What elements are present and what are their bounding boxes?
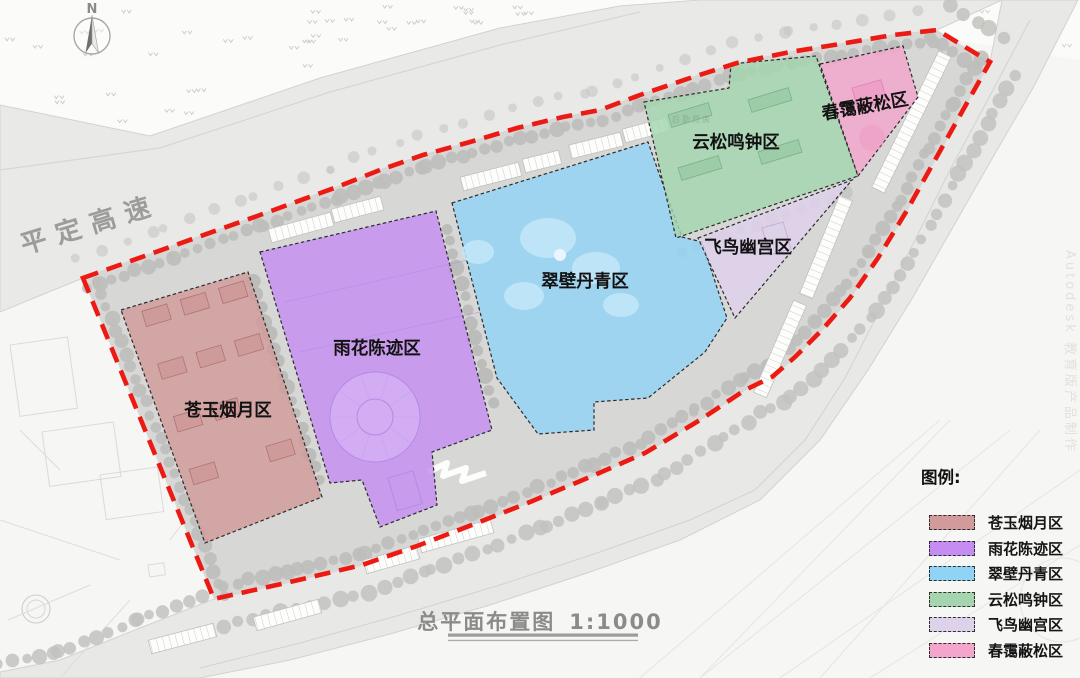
tree <box>347 590 358 601</box>
tree <box>144 610 154 620</box>
tree <box>431 154 446 169</box>
legend-item-chunai: 春霭蔽松区 <box>905 638 1075 664</box>
site-plan-canvas: 苍玉烟月区雨花陈迹区翠壁丹青区云松鸣钟区飞鸟幽宫区春霭蔽松区 N 平定高速 后勤… <box>0 0 1080 678</box>
tree <box>654 423 667 436</box>
tree <box>248 192 257 201</box>
tree <box>826 292 841 307</box>
tree <box>806 371 823 388</box>
tree <box>525 130 538 143</box>
tree <box>776 394 792 410</box>
tree <box>418 525 429 536</box>
tree <box>689 407 698 416</box>
tree <box>109 325 123 339</box>
tree <box>78 635 90 647</box>
tree <box>700 397 714 411</box>
tree <box>866 313 876 323</box>
legend-rows: 苍玉烟月区雨花陈迹区翠壁丹青区云松鸣钟区飞鸟幽宫区春霭蔽松区 <box>905 510 1075 663</box>
tree <box>998 32 1010 44</box>
tree <box>105 311 121 327</box>
tree <box>875 221 890 236</box>
tree <box>319 197 331 209</box>
tree <box>981 20 997 36</box>
tree <box>63 642 76 655</box>
tree <box>863 247 873 257</box>
tree <box>101 302 110 311</box>
tree <box>954 85 966 97</box>
tree <box>488 397 499 408</box>
tree <box>127 263 141 277</box>
tree <box>578 502 593 517</box>
tree <box>607 488 623 504</box>
tree <box>741 415 756 430</box>
tree <box>533 96 544 107</box>
tree <box>856 14 869 27</box>
tree <box>479 143 490 154</box>
tree <box>906 171 917 182</box>
tree <box>348 151 360 163</box>
legend-swatch-yuhua <box>929 541 975 556</box>
tree <box>483 499 498 514</box>
tree <box>446 151 458 163</box>
tree <box>948 181 958 191</box>
tree <box>935 120 946 131</box>
tree <box>633 478 649 494</box>
tree <box>667 417 678 428</box>
tree <box>32 649 47 664</box>
tree <box>439 124 448 133</box>
tree <box>445 235 455 245</box>
tree <box>472 345 483 356</box>
tree <box>184 213 195 224</box>
tree <box>810 316 821 327</box>
tree <box>218 234 228 244</box>
legend-swatch-cangyu <box>929 515 975 530</box>
tree <box>586 85 597 96</box>
tree <box>130 374 140 384</box>
legend-item-yuhua: 雨花陈迹区 <box>905 536 1075 562</box>
tree <box>140 395 152 407</box>
zone-label-yuhua: 雨花陈迹区 <box>333 338 421 359</box>
tree <box>613 78 623 88</box>
tree <box>117 622 127 632</box>
tree <box>339 552 352 565</box>
tree <box>148 226 160 238</box>
tree <box>635 439 646 450</box>
tree <box>228 231 238 241</box>
tree <box>959 72 972 85</box>
tree <box>849 268 858 277</box>
tree <box>332 591 349 608</box>
tree <box>578 459 592 473</box>
tree <box>596 115 608 127</box>
tree <box>371 543 381 553</box>
tree <box>455 276 470 291</box>
tree <box>726 36 738 48</box>
tree <box>623 442 637 456</box>
tree <box>483 544 493 554</box>
tree <box>381 536 394 549</box>
plan-title-block: 总平面布置图1:1000 <box>417 610 662 641</box>
tree <box>447 248 458 259</box>
tree <box>484 110 495 121</box>
legend-swatch-feiniao <box>929 617 975 632</box>
tree <box>878 291 892 305</box>
tree <box>195 589 209 603</box>
tree <box>957 8 970 21</box>
tree <box>883 9 895 21</box>
tree <box>412 130 423 141</box>
tree <box>721 380 736 395</box>
tree <box>92 276 103 287</box>
tree <box>981 116 997 132</box>
tree <box>204 238 215 249</box>
landscape-pond <box>554 249 566 261</box>
tree <box>539 128 550 139</box>
landscape-blob <box>603 293 639 317</box>
tree <box>0 658 3 669</box>
tree <box>522 487 533 498</box>
plan-path-line <box>0 520 120 560</box>
tree <box>854 323 866 335</box>
tree <box>150 422 161 433</box>
plan-outline <box>42 422 121 486</box>
tree <box>156 605 169 618</box>
legend-item-cuibi: 翠壁丹青区 <box>905 561 1075 587</box>
tree <box>283 211 293 221</box>
tree <box>698 79 711 92</box>
tree <box>950 165 966 181</box>
watermark-text: Autodesk 教育版产品制作 <box>1062 250 1078 454</box>
tree <box>307 202 317 212</box>
tree <box>508 103 517 112</box>
legend-label-feiniao: 飞鸟幽宫区 <box>988 614 1063 635</box>
plan-outline <box>148 563 166 577</box>
tree <box>461 291 471 301</box>
landscape-blob <box>859 125 885 151</box>
tree <box>51 644 65 658</box>
tree <box>533 520 549 536</box>
tree <box>695 446 706 457</box>
legend-item-yunsong: 云松鸣钟区 <box>905 587 1075 613</box>
tree <box>241 224 254 237</box>
tree <box>729 424 740 435</box>
legend-item-cangyu: 苍玉烟月区 <box>905 510 1075 536</box>
tree <box>909 248 919 258</box>
tree <box>483 385 494 396</box>
title-underline-thick <box>448 634 638 637</box>
tree <box>22 654 32 664</box>
tree <box>233 579 244 590</box>
tree <box>297 206 307 216</box>
tree <box>913 159 925 171</box>
tree <box>1010 70 1021 81</box>
tree <box>706 45 716 55</box>
tree <box>419 566 431 578</box>
tree <box>452 552 464 564</box>
tree <box>404 167 414 177</box>
tree <box>938 194 952 208</box>
tree <box>518 524 534 540</box>
tree <box>884 210 897 223</box>
tree <box>467 148 477 158</box>
legend-swatch-yunsong <box>929 592 975 607</box>
tree <box>217 620 232 635</box>
landscape-blob <box>520 218 576 258</box>
tree <box>586 118 595 127</box>
legend-swatch-chunai <box>929 643 975 658</box>
tree <box>611 112 621 122</box>
legend-item-feiniao: 飞鸟幽宫区 <box>905 612 1075 638</box>
plan-outline <box>10 337 77 416</box>
tree <box>442 224 453 235</box>
zone-label-cangyu: 苍玉烟月区 <box>183 400 272 421</box>
tree <box>154 258 164 268</box>
tree <box>206 564 221 579</box>
tree <box>553 516 564 527</box>
tree <box>6 654 20 668</box>
tree <box>458 119 468 129</box>
tree <box>297 171 310 184</box>
tree <box>454 511 466 523</box>
tree <box>389 171 403 185</box>
legend-label-yunsong: 云松鸣钟区 <box>988 589 1063 610</box>
tree <box>232 616 243 627</box>
tree <box>464 506 480 522</box>
tree <box>831 20 841 30</box>
tree <box>631 73 639 81</box>
tree <box>497 496 508 507</box>
tree <box>431 521 441 531</box>
tree <box>145 411 155 421</box>
tree <box>102 627 113 638</box>
tree <box>367 146 376 155</box>
tree <box>925 220 936 231</box>
tree <box>392 577 403 588</box>
tree <box>464 546 480 562</box>
legend-label-yuhua: 雨花陈迹区 <box>988 538 1063 559</box>
tree <box>235 195 247 207</box>
tree <box>554 92 563 101</box>
tree <box>183 595 196 608</box>
plan-title: 总平面布置图1:1000 <box>417 610 662 634</box>
tree <box>916 234 926 244</box>
tree <box>894 269 906 281</box>
zone-label-cuibi: 翠壁丹青区 <box>541 271 629 292</box>
tree <box>255 570 271 586</box>
tree <box>193 244 203 254</box>
tree <box>594 496 609 511</box>
tree <box>403 568 419 584</box>
tree <box>936 38 950 52</box>
tree <box>166 251 181 266</box>
tree <box>352 547 366 561</box>
tree <box>377 580 392 595</box>
tree <box>159 224 168 233</box>
tree <box>396 139 404 147</box>
tree <box>931 209 942 220</box>
tree <box>783 26 793 36</box>
tree <box>133 384 147 398</box>
tree <box>651 474 664 487</box>
tree <box>567 467 579 479</box>
landscape-blob <box>462 240 494 264</box>
tree <box>180 248 190 258</box>
tree <box>504 136 515 147</box>
tree <box>89 630 104 645</box>
landscape-blob <box>504 282 544 310</box>
tree <box>945 98 959 112</box>
legend-label-cangyu: 苍玉烟月区 <box>988 512 1063 533</box>
tree <box>754 33 763 42</box>
tree <box>170 599 183 612</box>
legend: 图例: 苍玉烟月区雨花陈迹区翠壁丹青区云松鸣钟区飞鸟幽宫区春霭蔽松区 <box>905 468 1075 663</box>
tree <box>204 552 217 565</box>
tree <box>670 461 684 475</box>
tree <box>477 359 487 369</box>
tree <box>443 515 455 527</box>
plan-title-text: 总平面布置图 <box>417 610 555 634</box>
tree <box>507 491 520 504</box>
tree <box>141 259 156 274</box>
site-annotation: 后勤用房 <box>672 114 712 124</box>
tree <box>329 555 339 565</box>
tree <box>679 54 690 65</box>
tree <box>361 585 378 602</box>
tree <box>556 470 567 481</box>
legend-title: 图例: <box>921 468 1075 488</box>
tree <box>273 181 283 191</box>
tree <box>507 534 517 544</box>
tree <box>164 457 175 468</box>
tree <box>869 234 881 246</box>
tree <box>560 121 570 131</box>
plan-path-line <box>20 430 60 470</box>
tree <box>809 23 817 31</box>
tree <box>358 180 374 196</box>
tree <box>436 557 453 574</box>
plan-outline <box>100 467 164 520</box>
tree <box>915 38 926 49</box>
legend-swatch-cuibi <box>929 566 975 581</box>
tree <box>418 159 433 174</box>
plan-roundabout-inner <box>27 600 45 618</box>
tree <box>397 534 407 544</box>
tree <box>912 5 923 16</box>
tree <box>919 148 929 158</box>
tree <box>208 203 220 215</box>
tree <box>941 110 951 120</box>
tree <box>572 119 584 131</box>
tree <box>688 82 699 93</box>
tree <box>564 506 579 521</box>
tree <box>95 288 107 300</box>
tree <box>900 256 915 271</box>
tree <box>707 435 723 451</box>
tree <box>71 254 80 263</box>
tree <box>901 182 914 195</box>
tree <box>124 237 132 245</box>
tree <box>119 348 134 363</box>
tree <box>490 140 503 153</box>
tree <box>326 166 334 174</box>
tree <box>160 443 171 454</box>
tree <box>96 245 108 257</box>
tree <box>992 93 1007 108</box>
plan-roundabout <box>22 595 50 623</box>
tree <box>711 389 720 398</box>
tree <box>892 201 903 212</box>
tree <box>106 274 116 284</box>
tree <box>624 484 635 495</box>
plan-scale-text: 1:1000 <box>569 610 662 634</box>
north-letter: N <box>87 2 98 17</box>
zone-label-feiniao: 飞鸟幽宫区 <box>704 237 792 258</box>
tree <box>857 258 867 268</box>
legend-label-chunai: 春霭蔽松区 <box>988 640 1063 661</box>
tree <box>847 333 857 343</box>
tree <box>408 530 418 540</box>
zone-label-yunsong: 云松鸣钟区 <box>692 132 780 153</box>
legend-label-cuibi: 翠壁丹青区 <box>988 563 1063 584</box>
tree <box>656 64 664 72</box>
tree <box>546 479 555 488</box>
tree <box>213 579 223 589</box>
tree <box>258 220 270 232</box>
tree <box>131 613 144 626</box>
tree <box>753 405 767 419</box>
tree <box>314 557 328 571</box>
title-underline-thin <box>448 640 638 641</box>
tree <box>610 446 622 458</box>
tree <box>681 454 693 466</box>
